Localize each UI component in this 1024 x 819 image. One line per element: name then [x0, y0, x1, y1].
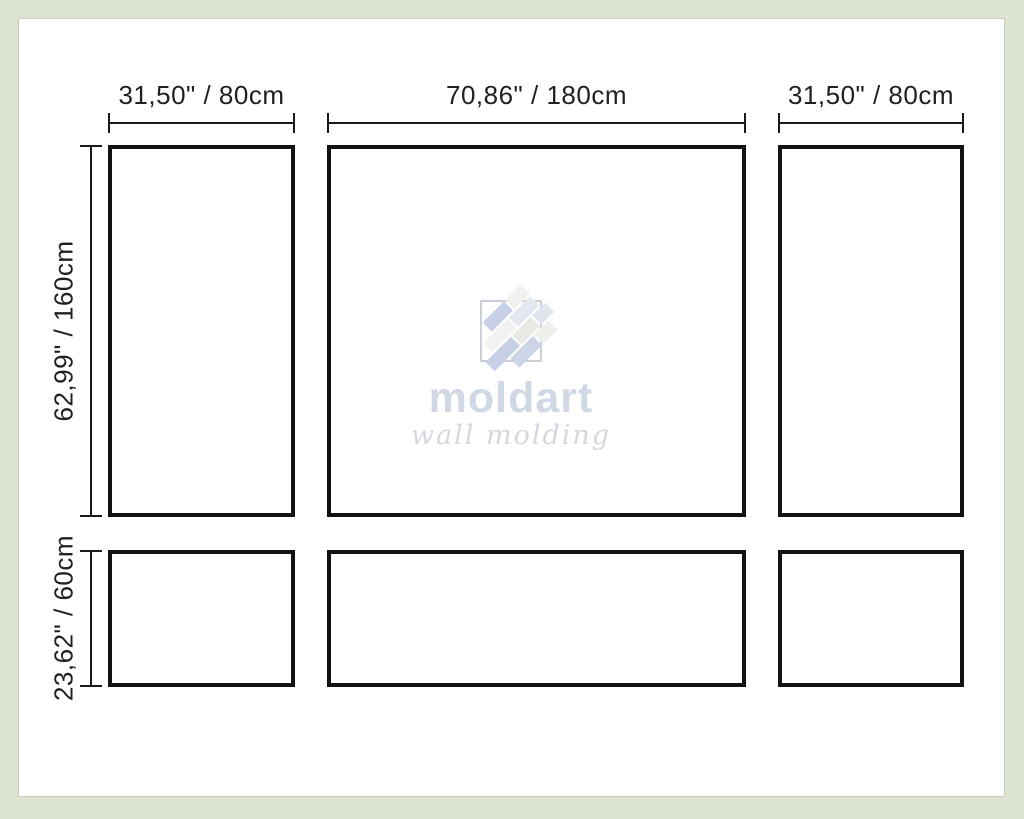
dimension-label-top-center-width: 70,86" / 180cm	[327, 80, 746, 111]
dimension-line-left-top	[90, 145, 92, 517]
dimension-line-left-bottom	[90, 550, 92, 687]
panel-top-right	[778, 145, 964, 517]
dimension-line-top-left	[108, 122, 295, 124]
wall-molding-diagram: 31,50" / 80cm 70,86" / 180cm 31,50" / 80…	[0, 0, 1024, 819]
panel-bottom-center	[327, 550, 746, 687]
panel-bottom-right	[778, 550, 964, 687]
dimension-label-left-top-height: 62,99" / 160cm	[49, 240, 80, 421]
panel-top-center	[327, 145, 746, 517]
dimension-line-top-right	[778, 122, 964, 124]
panel-top-left	[108, 145, 295, 517]
dimension-label-top-left-width: 31,50" / 80cm	[108, 80, 295, 111]
dimension-label-top-right-width: 31,50" / 80cm	[778, 80, 964, 111]
panel-bottom-left	[108, 550, 295, 687]
dimension-label-left-bottom-height: 23,62" / 60cm	[49, 535, 80, 701]
dimension-line-top-center	[327, 122, 746, 124]
